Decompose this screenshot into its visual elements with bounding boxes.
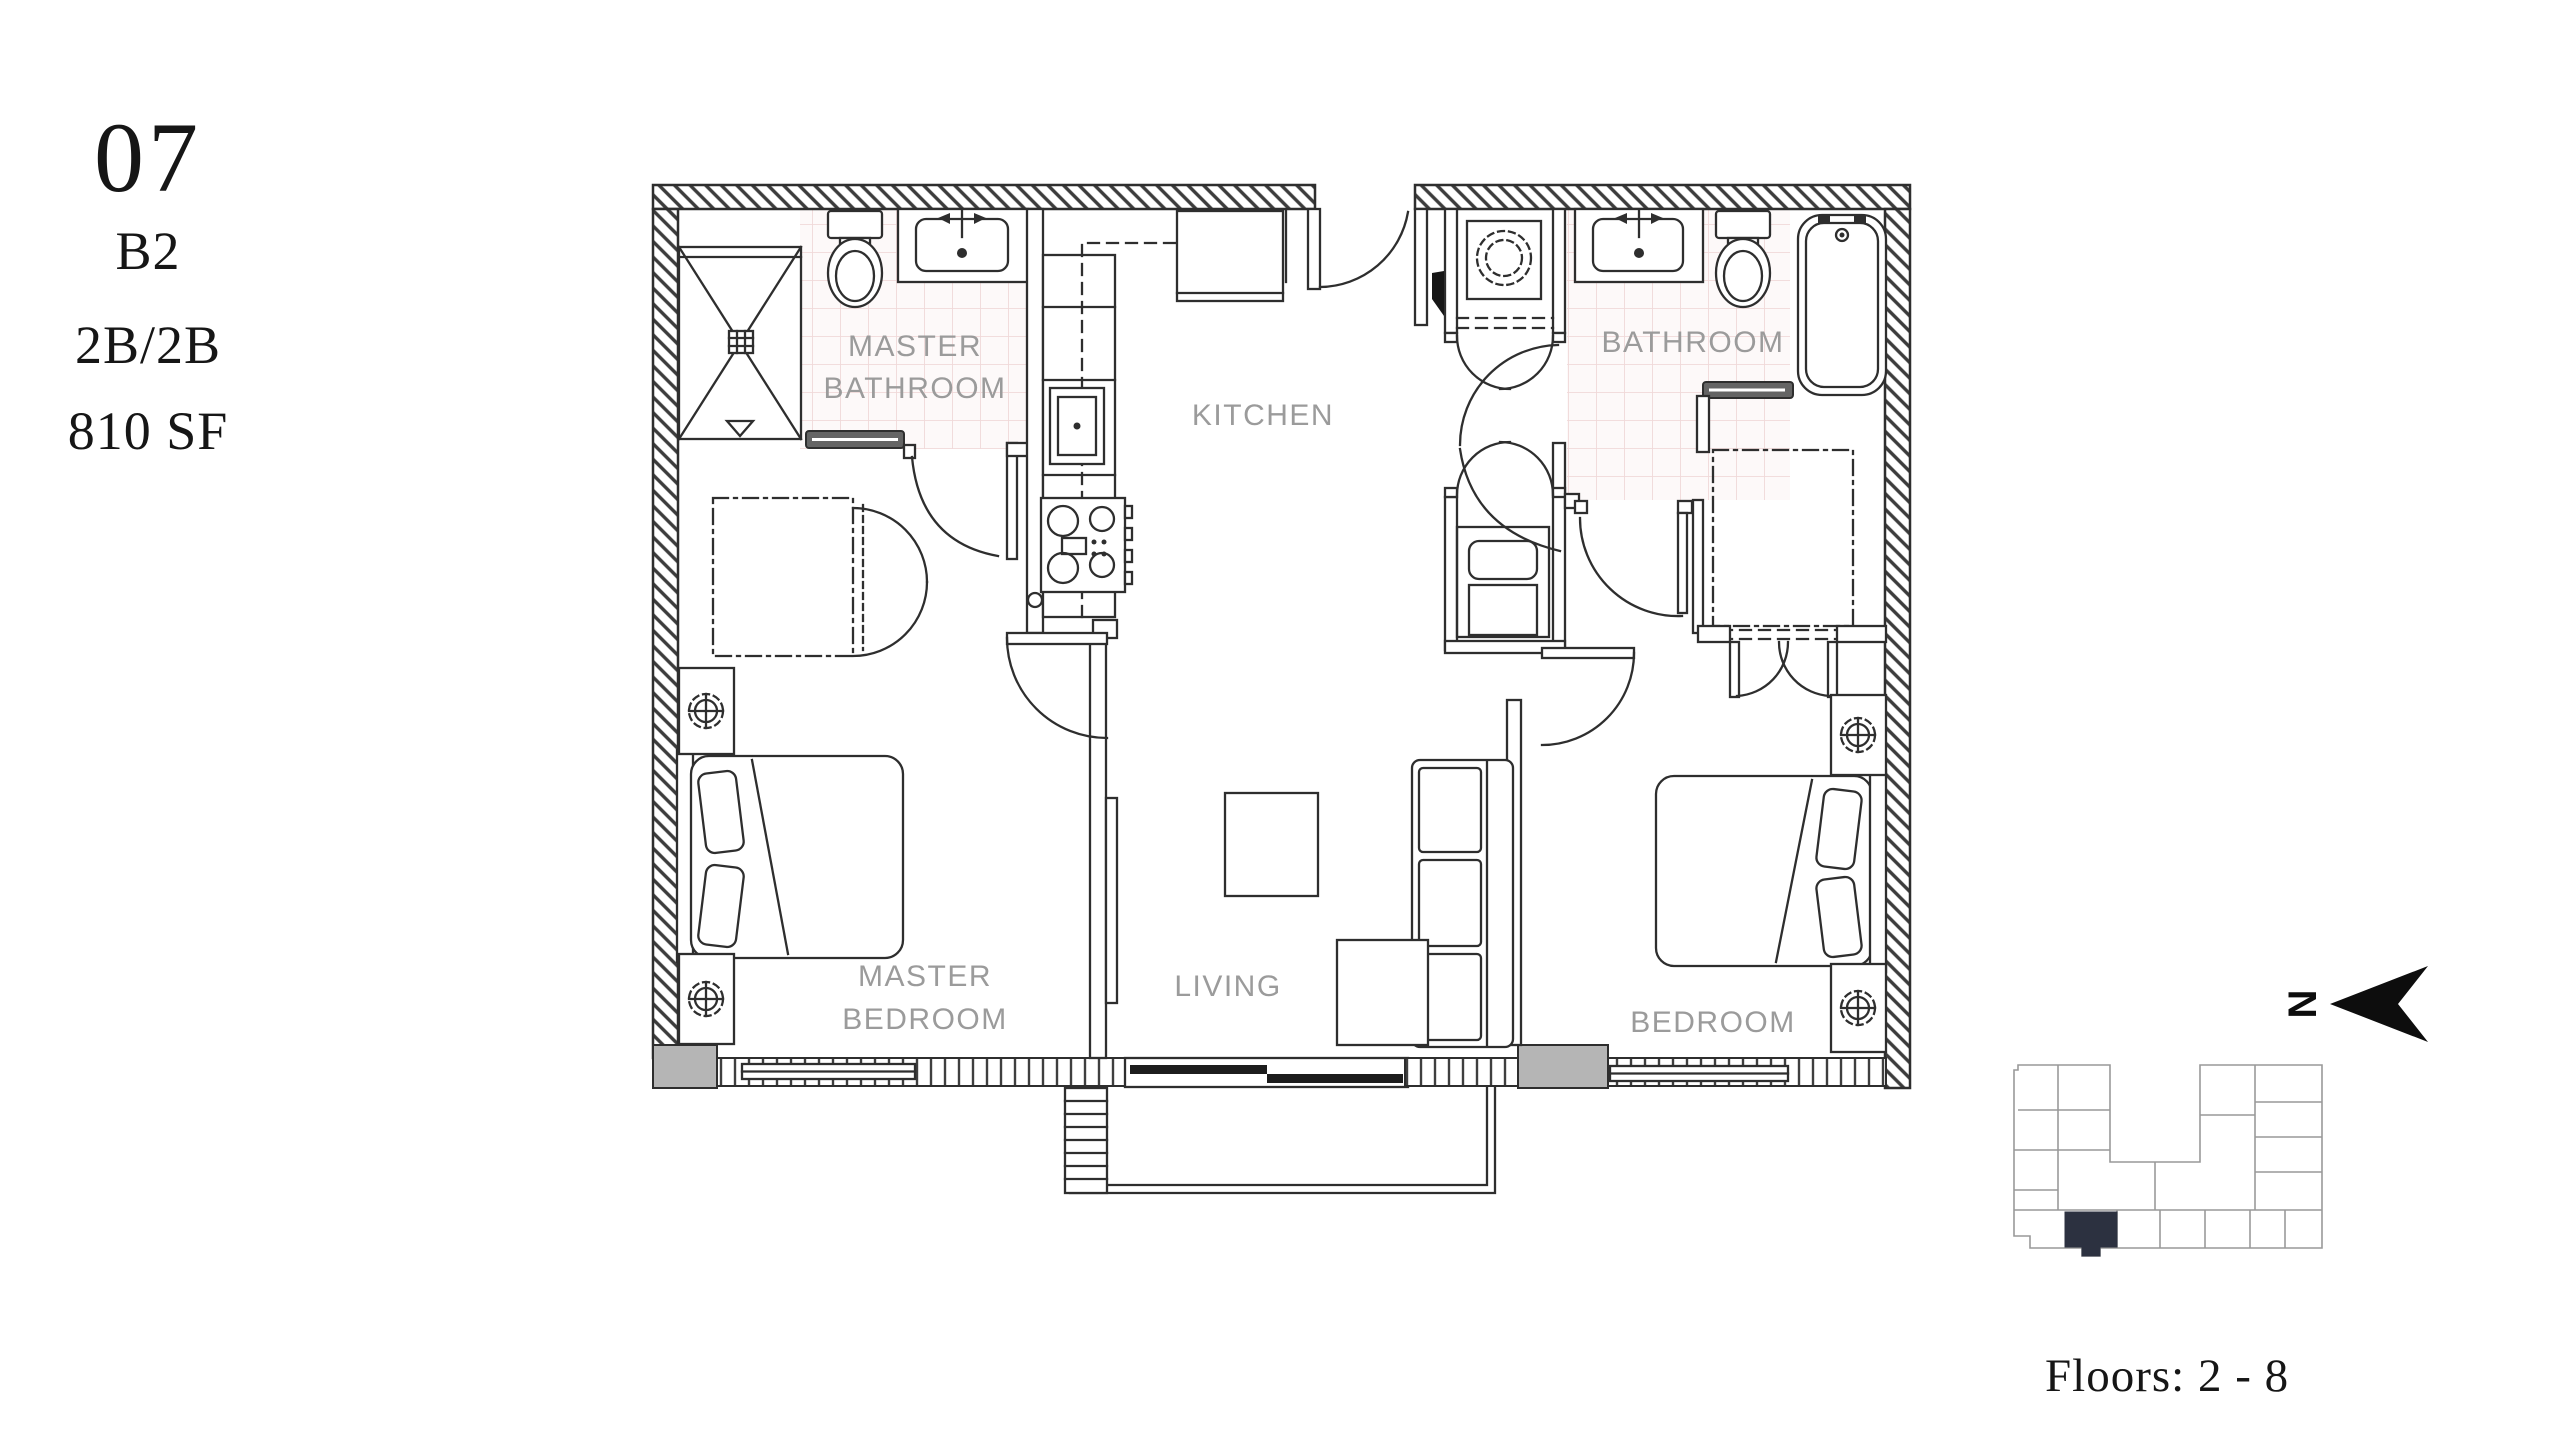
entry-door — [1308, 209, 1427, 325]
pillow — [1815, 788, 1862, 870]
pillow — [697, 864, 744, 948]
bathroom-label: BATHROOM — [1601, 326, 1784, 359]
south-facade — [653, 1045, 1886, 1088]
sliding-door-panel — [1130, 1065, 1267, 1074]
lamp — [1841, 718, 1875, 752]
headboard — [1870, 770, 1886, 972]
lamp — [689, 982, 723, 1016]
coffee-table — [1225, 793, 1318, 896]
vanity-sink — [1575, 209, 1703, 282]
facade-pier — [653, 1045, 717, 1088]
lamp — [689, 694, 723, 728]
north-label: N — [2281, 990, 2325, 1019]
bed — [677, 750, 903, 962]
master-bathroom-label-line2: BATHROOM — [823, 372, 1006, 405]
lamp — [1841, 991, 1875, 1025]
toilet — [828, 211, 882, 307]
toilet — [1716, 211, 1770, 307]
kitchen: KITCHEN — [1027, 209, 1334, 638]
master-bathroom-door-swing — [912, 457, 998, 556]
bedroom-door-swing — [1542, 653, 1634, 745]
kitchen-label: KITCHEN — [1192, 399, 1334, 432]
oven — [1050, 388, 1104, 464]
bedroom: BEDROOM — [1507, 648, 1886, 1052]
bathroom-door-swing — [1580, 518, 1682, 616]
bedroom-door-leaf — [1542, 648, 1634, 658]
laundry-tub — [1469, 541, 1537, 579]
master-bedroom-label-line1: MASTER — [858, 960, 992, 993]
master-bedroom-label-line2: BEDROOM — [842, 1003, 1008, 1036]
shower-drain — [729, 331, 753, 353]
ottoman — [1337, 940, 1428, 1045]
master-bathroom-label-line1: MASTER — [848, 330, 982, 363]
cooktop — [1041, 498, 1132, 592]
laundry-closet — [1432, 209, 1565, 445]
balcony — [1065, 1088, 1495, 1193]
master-bathroom: MASTER BATHROOM — [679, 209, 1029, 559]
living-room: LIVING — [1007, 633, 1513, 1058]
floor-plan-drawing: MASTER BATHROOM — [0, 0, 2560, 1440]
door-stop-wedge — [1432, 271, 1444, 316]
living-label: LIVING — [1174, 970, 1281, 1003]
key-plan — [2014, 1065, 2322, 1256]
tv — [1106, 798, 1117, 1003]
vanity-sink — [898, 209, 1028, 282]
pillow — [697, 770, 744, 854]
highlighted-unit — [2065, 1212, 2117, 1256]
master-bedroom-door-leaf — [1007, 633, 1107, 644]
utility-closet — [1445, 442, 1565, 653]
floorplan-sheet: 07 B2 2B/2B 810 SF Floors: 2 - 8 — [0, 0, 2560, 1440]
sliding-door-panel — [1267, 1074, 1403, 1083]
refrigerator — [1177, 211, 1286, 301]
facade-pier — [1518, 1045, 1608, 1088]
bedroom-label: BEDROOM — [1630, 1006, 1796, 1039]
north-arrow: N — [2281, 966, 2428, 1042]
bed — [1656, 770, 1886, 972]
pillow — [1815, 876, 1862, 958]
walk-in-closet — [713, 498, 927, 656]
master-bedroom: MASTER BEDROOM — [677, 498, 1008, 1044]
bathtub — [1798, 215, 1886, 395]
north-arrow-icon — [2330, 966, 2428, 1042]
